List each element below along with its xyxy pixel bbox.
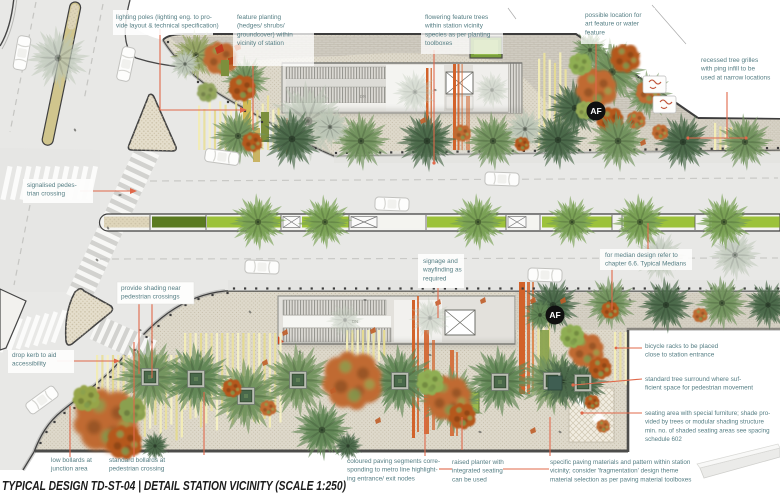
- svg-text:for median design refer tochap: for median design refer tochapter 6.6. T…: [605, 252, 686, 268]
- svg-text:standard tree surround where s: standard tree surround where suf-ficient…: [645, 376, 753, 392]
- svg-text:specific paving materials and: specific paving materials and pattern wi…: [550, 459, 691, 483]
- svg-text:standard bollards atpedestrian: standard bollards atpedestrian crossing: [109, 457, 165, 473]
- svg-text:TYPICAL DESIGN TD-ST-04 | DETA: TYPICAL DESIGN TD-ST-04 | DETAIL STATION…: [2, 479, 346, 493]
- svg-text:provide shading nearpedestrian: provide shading nearpedestrian crossings: [121, 285, 182, 301]
- svg-text:bicycle racks to be placedclos: bicycle racks to be placedclose to stati…: [645, 343, 719, 359]
- svg-text:lighting poles (lighting eng.: lighting poles (lighting eng. to pro-vid…: [116, 14, 219, 30]
- svg-text:AF: AF: [549, 310, 560, 320]
- svg-text:DN: DN: [360, 94, 366, 99]
- svg-text:AF: AF: [590, 106, 601, 116]
- svg-text:low bollards atjunction area: low bollards atjunction area: [50, 457, 92, 473]
